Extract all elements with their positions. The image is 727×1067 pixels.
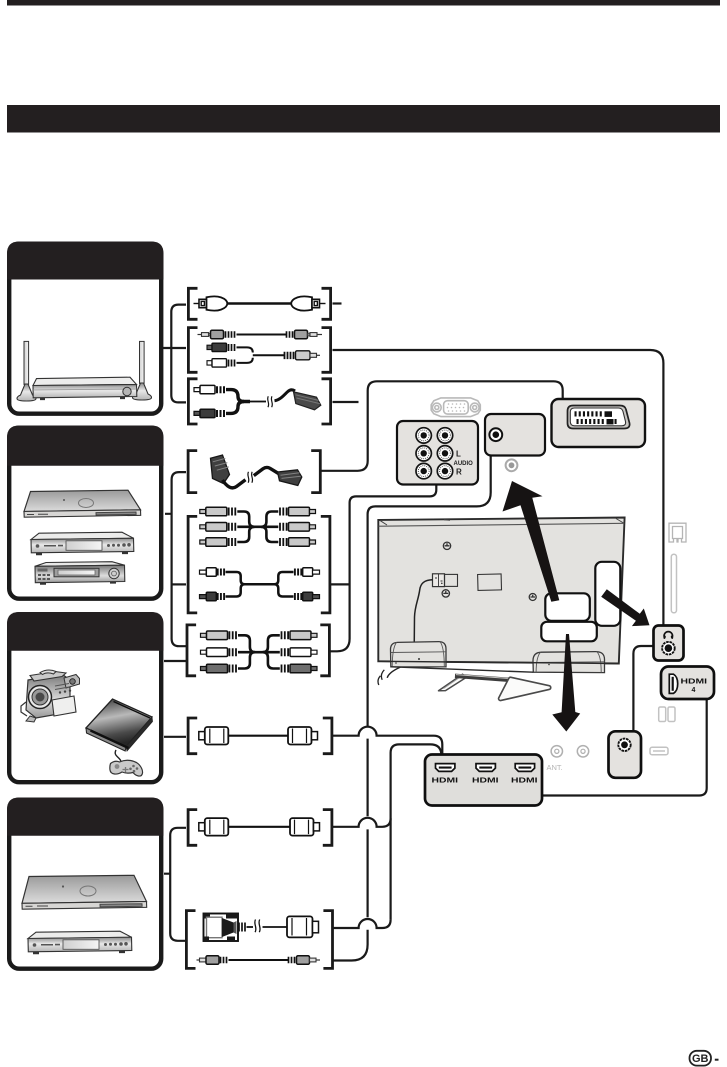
svg-text:4: 4	[692, 687, 696, 694]
svg-text:HDMI: HDMI	[511, 775, 538, 784]
svg-text:GB: GB	[692, 1053, 709, 1065]
svg-text:ANT.: ANT.	[547, 763, 563, 772]
svg-text:HDMI: HDMI	[432, 775, 459, 784]
svg-text:HDMI: HDMI	[472, 775, 499, 784]
svg-text:AUDIO: AUDIO	[454, 461, 474, 467]
svg-text:L: L	[456, 450, 461, 459]
svg-text:R: R	[456, 468, 462, 477]
svg-text:HDMI: HDMI	[681, 676, 708, 685]
